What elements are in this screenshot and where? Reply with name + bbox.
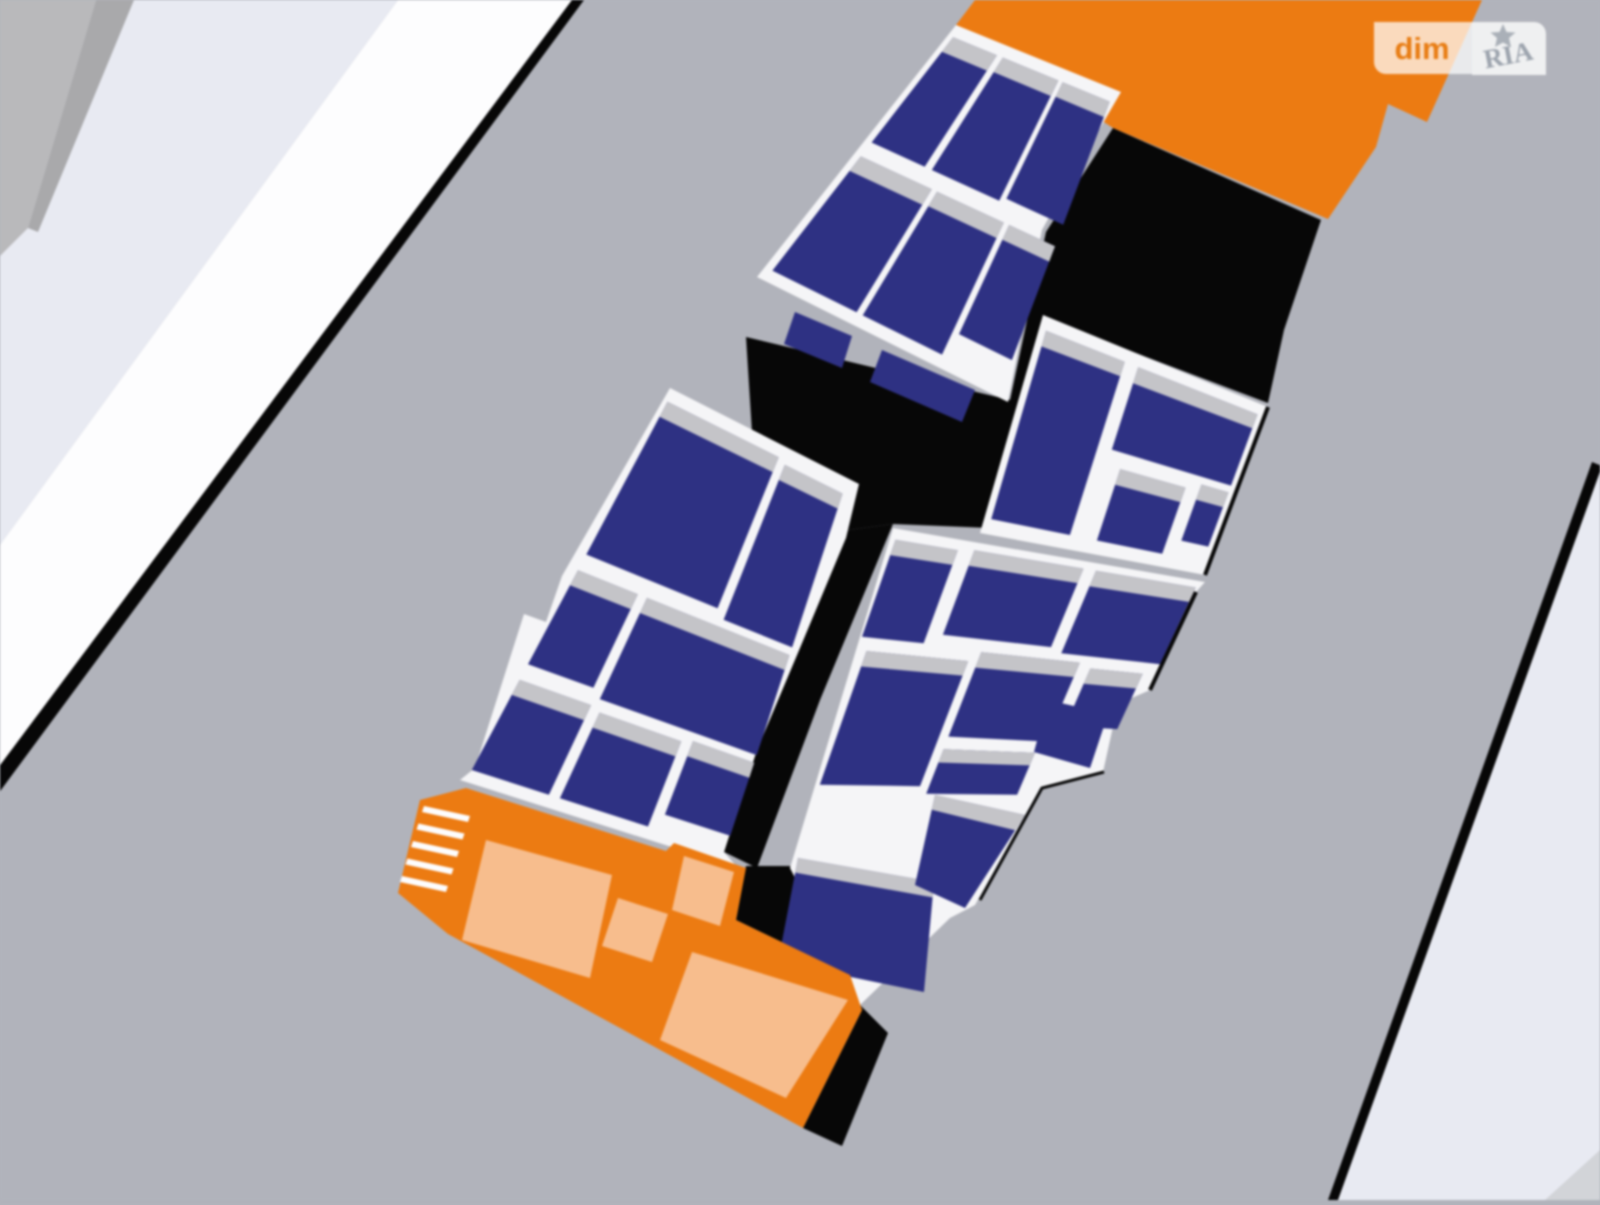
svg-text:dim: dim [1394,31,1449,66]
